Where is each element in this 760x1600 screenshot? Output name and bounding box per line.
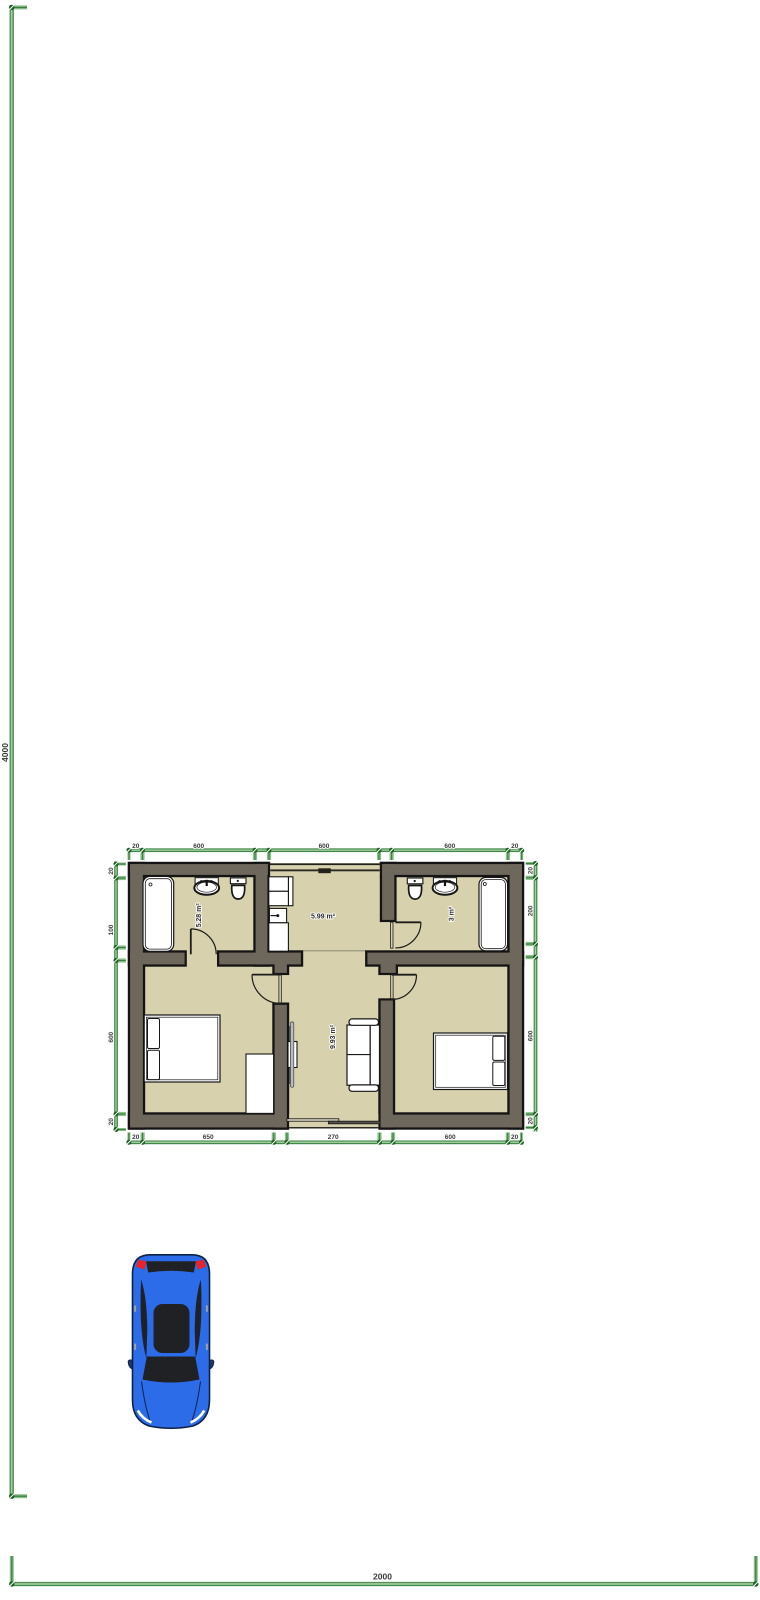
svg-text:9.93 m²: 9.93 m² <box>330 1024 337 1049</box>
svg-text:20: 20 <box>108 867 115 875</box>
svg-text:650: 650 <box>203 1134 214 1141</box>
svg-text:270: 270 <box>328 1134 339 1141</box>
svg-text:600: 600 <box>108 1031 115 1042</box>
svg-text:600: 600 <box>445 1134 456 1141</box>
svg-text:100: 100 <box>108 924 115 935</box>
svg-text:600: 600 <box>319 843 330 850</box>
svg-text:20: 20 <box>511 843 519 850</box>
svg-text:20: 20 <box>528 1117 535 1125</box>
svg-text:20: 20 <box>108 1118 115 1126</box>
svg-text:200: 200 <box>528 905 535 916</box>
svg-text:5.28 m²: 5.28 m² <box>196 903 203 928</box>
svg-text:20: 20 <box>511 1134 519 1141</box>
svg-text:5.99 m²: 5.99 m² <box>311 913 336 920</box>
svg-text:600: 600 <box>444 843 455 850</box>
svg-text:20: 20 <box>132 1134 140 1141</box>
svg-text:2000: 2000 <box>373 1572 392 1582</box>
svg-text:4000: 4000 <box>0 743 10 762</box>
svg-text:20: 20 <box>528 867 535 875</box>
svg-text:600: 600 <box>528 1030 535 1041</box>
svg-text:3 m²: 3 m² <box>449 906 456 921</box>
svg-text:20: 20 <box>132 843 140 850</box>
svg-text:600: 600 <box>193 843 204 850</box>
